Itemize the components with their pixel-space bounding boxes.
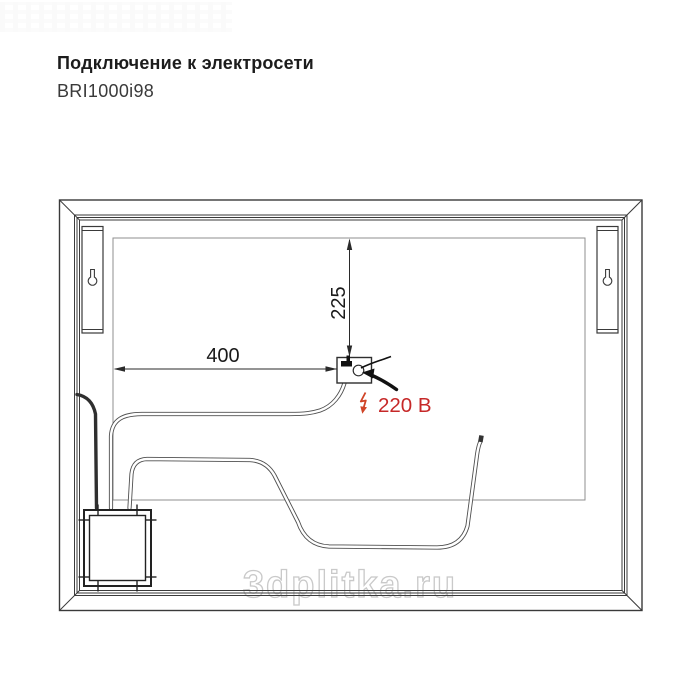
mount-bracket-left [82,227,103,334]
page: Подключение к электросети BRI1000i98 3dp… [0,0,700,700]
installation-diagram: 3dplitka.ru 40 [0,0,700,700]
mount-bracket-right [597,227,618,334]
watermark-text: 3dplitka.ru [243,564,457,606]
dim-label-horizontal: 400 [206,345,239,367]
driver-box-inner [90,516,146,581]
terminal-connector [341,361,352,367]
driver-box [79,505,157,592]
terminal-connector-tab [347,356,351,362]
dim-label-vertical: 225 [328,286,350,319]
power-label-text: 220 В [378,394,432,417]
